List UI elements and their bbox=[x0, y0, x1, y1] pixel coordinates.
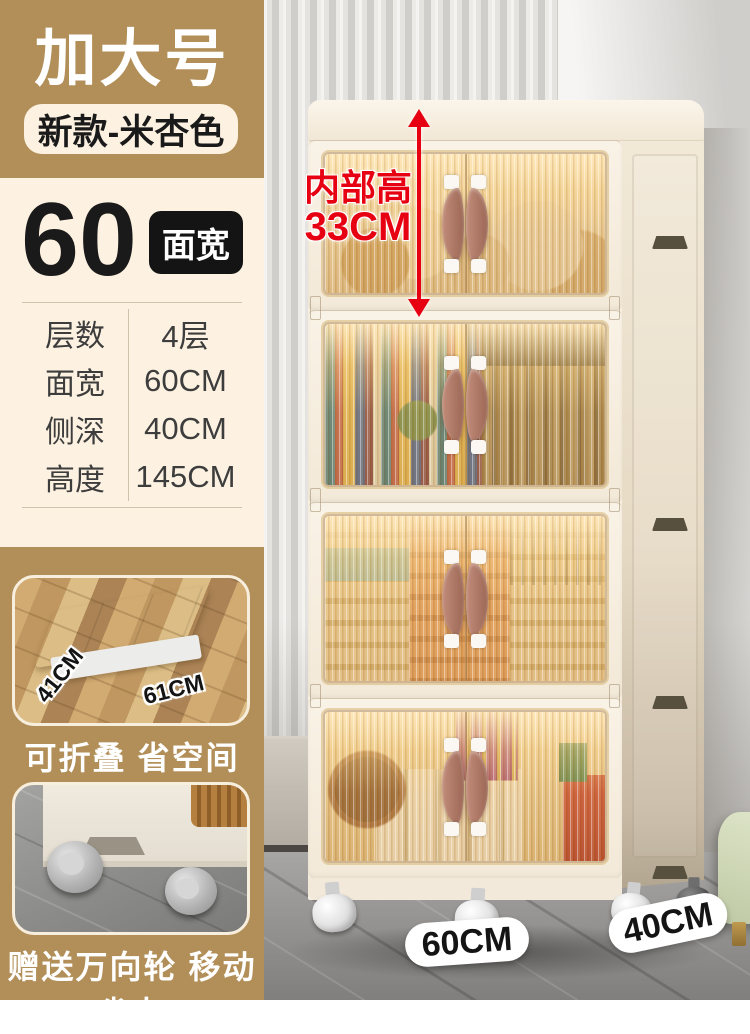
spec-label: 面宽 bbox=[22, 357, 129, 405]
pouf-gold-leg bbox=[732, 922, 746, 946]
width-floor-badge: 60CM bbox=[404, 916, 531, 969]
annotation-line1: 内部高 bbox=[298, 170, 418, 206]
width-unit-badge: 面宽 bbox=[149, 211, 243, 274]
fold-latch bbox=[609, 488, 620, 512]
width-headline: 60 面宽 bbox=[0, 196, 264, 284]
side-handle-slot bbox=[652, 236, 688, 249]
tier-4-door-window bbox=[323, 710, 607, 863]
height-arrow-icon bbox=[417, 124, 421, 302]
table-row: 侧深 40CM bbox=[22, 405, 242, 453]
tier-3-rolled-clothes bbox=[308, 502, 622, 699]
spec-panel: 60 面宽 层数 4层 面宽 60CM 侧深 40CM 高度 145CM bbox=[0, 178, 264, 547]
cabinet-side-face bbox=[622, 118, 704, 888]
tier-2-books bbox=[308, 310, 622, 503]
caster-wheel bbox=[47, 841, 103, 893]
side-recessed-panel bbox=[632, 154, 698, 858]
cabinet-lid bbox=[308, 100, 704, 141]
product-scene: 内部高 33CM 60CM 40CM bbox=[264, 0, 750, 1000]
spec-label: 高度 bbox=[22, 453, 129, 501]
side-handle-slot bbox=[652, 518, 688, 531]
table-row: 面宽 60CM bbox=[22, 357, 242, 405]
cabinet-cast-shadow bbox=[704, 128, 750, 860]
fold-latch bbox=[310, 488, 321, 512]
wheels-photo bbox=[12, 782, 250, 935]
door-handle-icon bbox=[435, 356, 495, 454]
snack-hint bbox=[191, 785, 247, 827]
annotation-line2: 33CM bbox=[298, 206, 418, 248]
side-handle-slot bbox=[652, 696, 688, 709]
spec-label: 侧深 bbox=[22, 405, 129, 453]
fold-latch bbox=[609, 296, 620, 320]
wheels-caption: 赠送万向轮 移动省力 bbox=[0, 942, 264, 1034]
caster-wheel bbox=[310, 880, 358, 936]
spec-value: 40CM bbox=[129, 411, 242, 447]
folded-box-photo: 41CM 61CM bbox=[12, 575, 250, 726]
tier-3-door-window bbox=[323, 514, 607, 683]
door-handle-icon bbox=[435, 738, 495, 836]
spec-value: 60CM bbox=[129, 363, 242, 399]
table-row: 高度 145CM bbox=[22, 453, 242, 501]
sidebar-header: 加大号 新款-米杏色 bbox=[0, 0, 264, 178]
fold-latch bbox=[310, 684, 321, 708]
door-handle-icon bbox=[435, 175, 495, 273]
fold-caption: 可折叠 省空间 bbox=[0, 733, 264, 779]
spec-value: 4层 bbox=[129, 311, 242, 356]
info-sidebar: 加大号 新款-米杏色 60 面宽 层数 4层 面宽 60CM 侧深 40CM 高… bbox=[0, 0, 264, 1000]
door-handle-icon bbox=[435, 550, 495, 648]
fold-latch bbox=[310, 296, 321, 320]
width-number: 60 bbox=[21, 196, 137, 284]
fold-latch bbox=[609, 684, 620, 708]
table-row: 层数 4层 bbox=[22, 309, 242, 357]
spec-value: 145CM bbox=[129, 459, 242, 495]
tier-2-door-window bbox=[323, 322, 607, 487]
size-title: 加大号 bbox=[0, 8, 264, 98]
internal-height-annotation: 内部高 33CM bbox=[298, 170, 418, 248]
color-variant-pill: 新款-米杏色 bbox=[24, 104, 238, 154]
tier-4-snacks bbox=[308, 698, 622, 879]
caster-wheel bbox=[165, 867, 217, 915]
spec-label: 层数 bbox=[22, 309, 129, 357]
spec-table: 层数 4层 面宽 60CM 侧深 40CM 高度 145CM bbox=[22, 302, 242, 508]
